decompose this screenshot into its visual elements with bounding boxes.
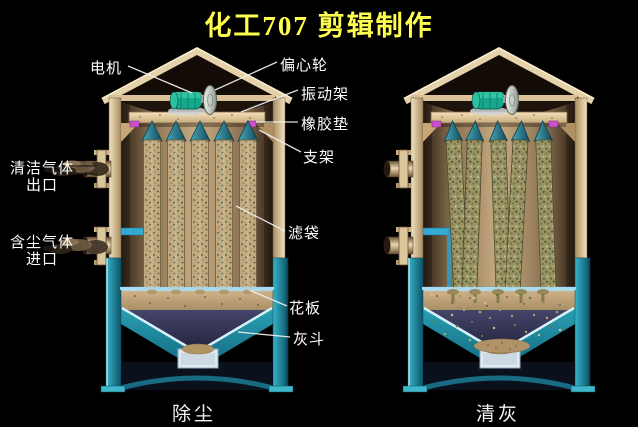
slide: 化工707 剪辑制作 电机 偏心轮 振动架 橡胶垫 支架 清洁气体 出口 含尘气… — [0, 0, 638, 427]
label-support: 支架 — [303, 146, 335, 167]
label-ash-hopper: 灰斗 — [293, 328, 325, 349]
right-filter-bags — [443, 121, 557, 289]
hopper-dust-heap — [474, 339, 530, 353]
left-unit — [43, 48, 293, 392]
label-vibration-frame: 振动架 — [301, 83, 349, 104]
caption-dust-removal: 除尘 — [172, 399, 216, 426]
caption-dust-cleaning: 清灰 — [476, 399, 520, 426]
label-clean-gas-outlet: 清洁气体 出口 — [6, 161, 78, 195]
label-tube-sheet: 花板 — [289, 297, 321, 318]
left-unit-shell — [82, 48, 294, 392]
label-clean-gas-line1: 清洁气体 — [6, 161, 78, 178]
label-dusty-gas-line2: 进口 — [6, 252, 78, 269]
label-clean-gas-line2: 出口 — [6, 178, 78, 195]
label-rubber-pad: 橡胶垫 — [301, 113, 349, 134]
label-dusty-gas-inlet: 含尘气体 进口 — [6, 235, 78, 269]
label-motor: 电机 — [90, 57, 122, 78]
label-eccentric-wheel: 偏心轮 — [280, 54, 328, 75]
right-unit — [384, 48, 596, 392]
left-filter-bags — [142, 121, 258, 289]
label-filter-bag: 滤袋 — [288, 222, 320, 243]
label-dusty-gas-line1: 含尘气体 — [6, 235, 78, 252]
page-title: 化工707 剪辑制作 — [0, 4, 638, 43]
